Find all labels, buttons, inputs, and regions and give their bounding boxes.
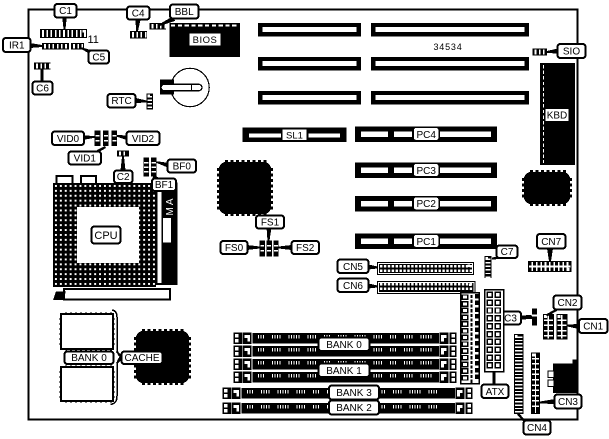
svg-text:CN7: CN7	[541, 237, 561, 248]
svg-text:PC4: PC4	[416, 130, 436, 141]
svg-text:34534: 34534	[433, 42, 462, 52]
svg-text:BANK 0: BANK 0	[326, 340, 362, 351]
svg-text:C4: C4	[132, 9, 145, 20]
svg-text:C1: C1	[59, 6, 72, 17]
svg-text:CN5: CN5	[343, 262, 363, 273]
svg-text:VID1: VID1	[74, 154, 97, 165]
svg-text:PC1: PC1	[416, 237, 436, 248]
svg-text:BANK 3: BANK 3	[336, 388, 372, 399]
svg-text:BF1: BF1	[155, 180, 174, 191]
svg-text:BIOS: BIOS	[193, 35, 218, 46]
svg-text:PC3: PC3	[416, 166, 436, 177]
svg-text:SIO: SIO	[563, 47, 580, 58]
svg-text:FS1: FS1	[261, 218, 280, 229]
svg-text:BANK 1: BANK 1	[326, 366, 362, 377]
svg-text:CN4: CN4	[527, 423, 547, 434]
svg-text:SL1: SL1	[286, 130, 303, 141]
svg-text:VID0: VID0	[57, 134, 80, 145]
svg-text:FS2: FS2	[296, 243, 315, 254]
svg-text:ATX: ATX	[486, 387, 505, 398]
svg-text:C5: C5	[92, 53, 105, 64]
svg-text:CN3: CN3	[558, 397, 578, 408]
svg-text:BF0: BF0	[173, 162, 192, 173]
svg-text:RTC: RTC	[111, 96, 131, 107]
svg-text:C3: C3	[504, 314, 517, 325]
svg-text:KBD: KBD	[547, 111, 568, 122]
svg-text:FS0: FS0	[225, 243, 244, 254]
svg-text:CN6: CN6	[343, 281, 363, 292]
svg-text:11: 11	[88, 34, 99, 46]
svg-text:BANK 0: BANK 0	[71, 353, 107, 364]
svg-text:C2: C2	[117, 172, 130, 183]
svg-text:IR1: IR1	[9, 41, 25, 52]
svg-text:BBL: BBL	[175, 7, 194, 18]
svg-text:C7: C7	[501, 247, 514, 258]
svg-text:C6: C6	[36, 84, 49, 95]
svg-text:CN1: CN1	[583, 322, 603, 333]
svg-text:CN2: CN2	[557, 298, 577, 309]
svg-text:CACHE: CACHE	[124, 353, 159, 364]
svg-text:BANK 2: BANK 2	[336, 403, 372, 414]
svg-text:VID2: VID2	[132, 134, 155, 145]
svg-text:MA: MA	[165, 197, 176, 216]
svg-text:PC2: PC2	[416, 199, 436, 210]
svg-text:CPU: CPU	[94, 230, 117, 242]
